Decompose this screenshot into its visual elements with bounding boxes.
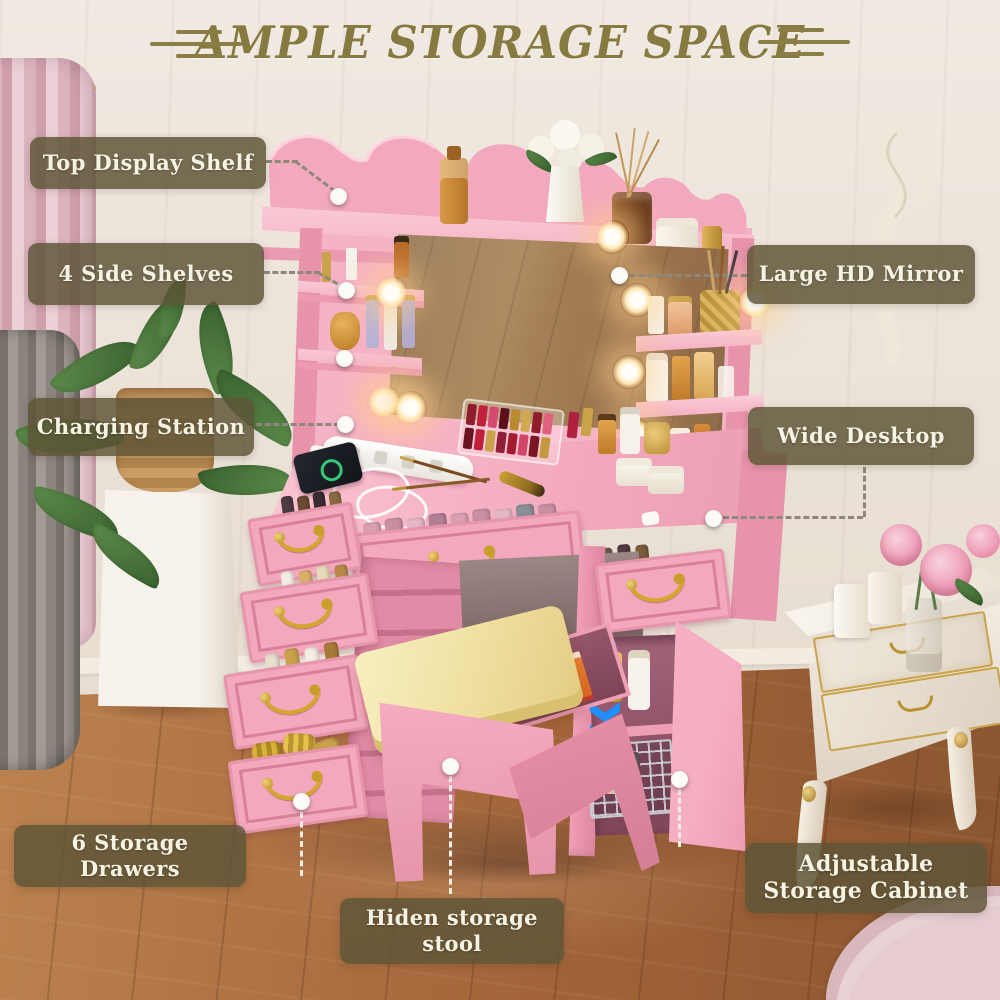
callout-hidden-storage-stool: Hiden storage stool <box>340 898 564 964</box>
callout-dot <box>337 416 354 433</box>
side-shelf-item <box>366 300 379 348</box>
wall-ornament <box>818 118 968 368</box>
callout-label: Hiden storage stool <box>348 905 556 958</box>
callout-label: 6 Storage Drawers <box>22 830 238 883</box>
led-bulb <box>620 283 654 317</box>
side-shelf-item <box>346 248 357 280</box>
pump-bottle <box>620 414 640 454</box>
callout-wide-desktop: Wide Desktop <box>748 407 974 465</box>
candle-jar <box>868 572 902 624</box>
callout-label: Top Display Shelf <box>43 150 254 176</box>
callout-dot <box>611 267 628 284</box>
perfume-bottle <box>598 420 616 454</box>
callout-dot <box>705 510 722 527</box>
callout-label: Wide Desktop <box>777 423 945 449</box>
leader-line <box>723 516 863 519</box>
callout-dot <box>330 188 347 205</box>
gray-curtain <box>0 330 80 770</box>
title-decoration-line <box>758 40 850 44</box>
led-bulb <box>374 276 408 310</box>
side-shelf-item <box>402 300 415 348</box>
leader-line <box>264 271 320 274</box>
white-vase <box>546 166 584 222</box>
callout-dot <box>293 793 310 810</box>
side-shelf-item <box>672 356 690 400</box>
cream-jar <box>648 466 684 494</box>
led-bulb <box>595 220 629 254</box>
title-decoration-line <box>778 28 824 32</box>
product-image: AMPLE STORAGE SPACE Top Display Shelf 4 … <box>0 0 1000 1000</box>
callout-label: Adjustable Storage Cabinet <box>753 851 979 906</box>
leader-line <box>863 467 866 517</box>
callout-label: Large HD Mirror <box>759 261 964 287</box>
pedestal <box>98 490 240 708</box>
led-bulb <box>393 391 427 425</box>
callout-adjustable-storage-cabinet: Adjustable Storage Cabinet <box>745 843 987 913</box>
gold-flask <box>644 422 670 454</box>
nightstand-leg-gold-accent <box>802 786 816 802</box>
title-decoration-line <box>778 52 824 56</box>
callout-dot <box>442 758 459 775</box>
leader-line <box>300 812 303 876</box>
title-decoration-line <box>176 54 222 58</box>
led-bulb <box>612 355 646 389</box>
dahlia-bloom <box>880 524 922 566</box>
callout-dot <box>338 282 355 299</box>
nightstand-leg-gold-accent <box>954 732 968 748</box>
side-shelf-item <box>694 352 714 400</box>
callout-dot <box>336 350 353 367</box>
cabinet-bottle <box>628 658 650 710</box>
side-shelf-item <box>330 312 360 350</box>
side-shelf-item <box>384 304 397 350</box>
side-shelf-item <box>668 302 692 336</box>
dahlia-bloom <box>966 524 1000 558</box>
leader-line <box>629 274 747 277</box>
callout-storage-drawers: 6 Storage Drawers <box>14 825 246 887</box>
callout-label: 4 Side Shelves <box>58 261 233 287</box>
callout-side-shelves: 4 Side Shelves <box>28 243 264 305</box>
callout-dot <box>671 771 688 788</box>
leader-line <box>449 776 452 894</box>
spray-bottle <box>440 158 468 224</box>
spray-bottle-cap <box>447 146 461 160</box>
diffuser-reeds <box>616 128 652 198</box>
leader-line <box>678 789 681 847</box>
side-shelf-item <box>394 242 409 278</box>
makeup-brushes <box>704 250 738 294</box>
title-decoration-line <box>176 30 222 34</box>
callout-label: Charging Station <box>37 414 245 440</box>
cream-jar <box>616 458 652 486</box>
leader-line <box>256 423 340 426</box>
callout-large-hd-mirror: Large HD Mirror <box>747 245 975 304</box>
candle-jar <box>834 584 870 638</box>
title-decoration-line <box>150 42 242 46</box>
side-shelf-item <box>646 360 668 402</box>
callout-charging-station: Charging Station <box>28 398 254 456</box>
callout-top-display-shelf: Top Display Shelf <box>30 137 266 189</box>
